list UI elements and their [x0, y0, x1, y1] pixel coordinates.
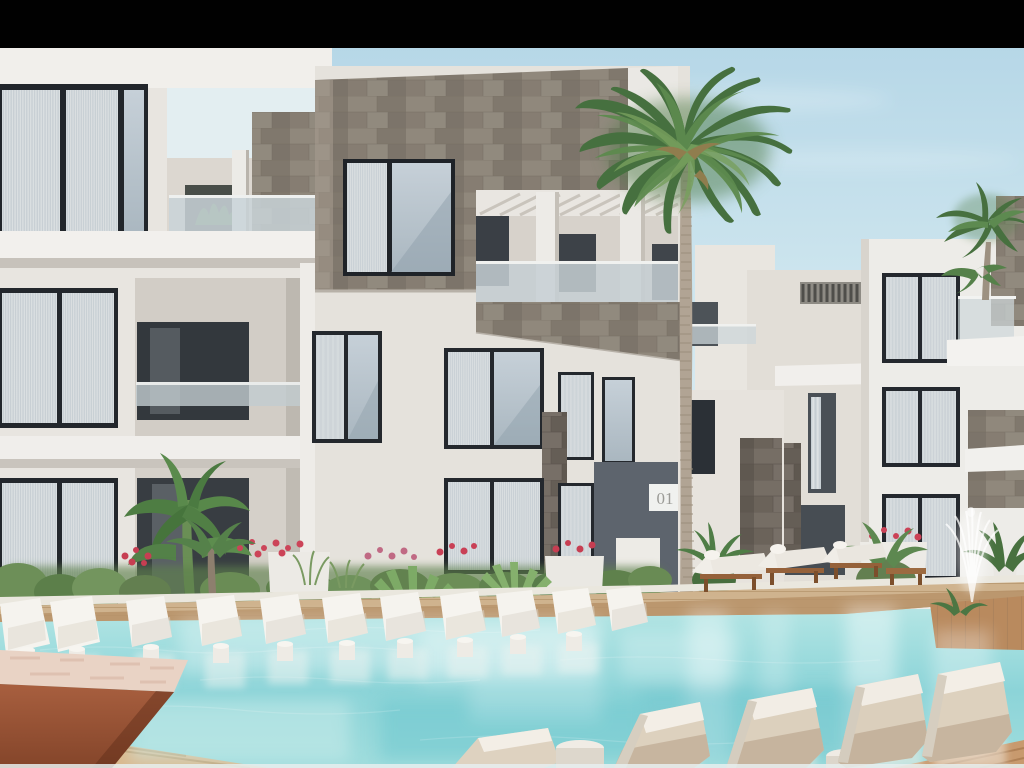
svg-text:01: 01 — [657, 489, 674, 508]
